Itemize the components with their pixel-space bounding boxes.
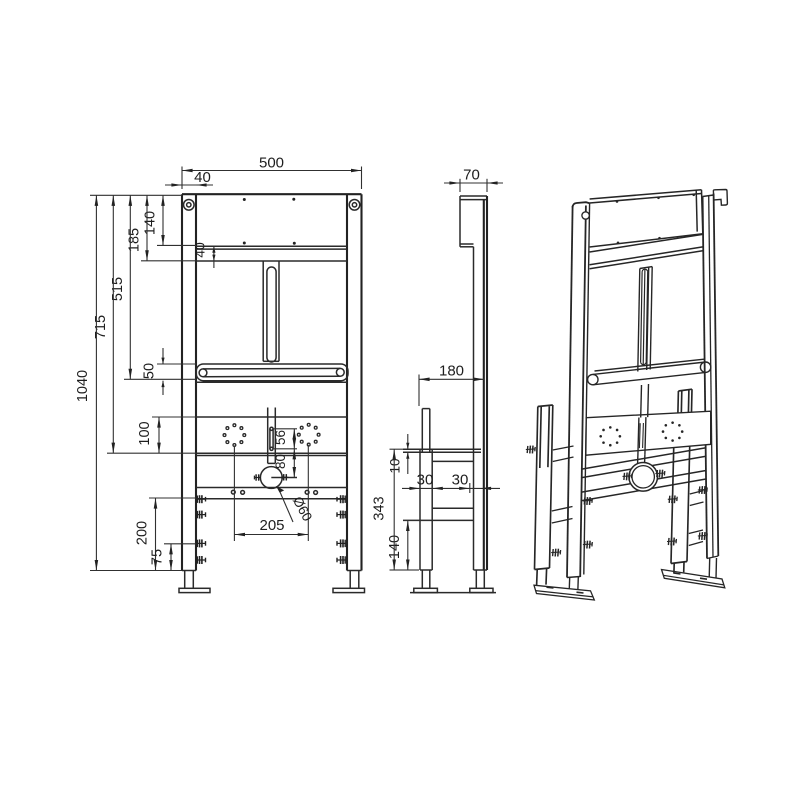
svg-text:205: 205 (259, 517, 284, 534)
svg-text:180: 180 (439, 363, 464, 380)
svg-text:80: 80 (273, 454, 288, 469)
svg-text:40: 40 (192, 242, 208, 258)
svg-text:140: 140 (387, 535, 403, 559)
svg-text:30: 30 (417, 472, 434, 489)
svg-text:10: 10 (387, 458, 402, 473)
svg-text:56: 56 (273, 430, 288, 445)
svg-text:40: 40 (194, 169, 211, 186)
svg-text:500: 500 (259, 155, 284, 172)
svg-text:100: 100 (137, 421, 153, 445)
svg-text:200: 200 (135, 521, 151, 545)
svg-text:30: 30 (452, 472, 469, 489)
svg-text:70: 70 (463, 167, 480, 184)
svg-text:1040: 1040 (75, 370, 91, 402)
svg-text:515: 515 (110, 277, 126, 301)
svg-text:185: 185 (127, 228, 143, 252)
svg-text:140: 140 (143, 211, 159, 235)
svg-text:343: 343 (372, 496, 388, 520)
svg-text:715: 715 (93, 315, 109, 339)
svg-text:75: 75 (150, 549, 166, 565)
svg-text:50: 50 (142, 363, 158, 379)
